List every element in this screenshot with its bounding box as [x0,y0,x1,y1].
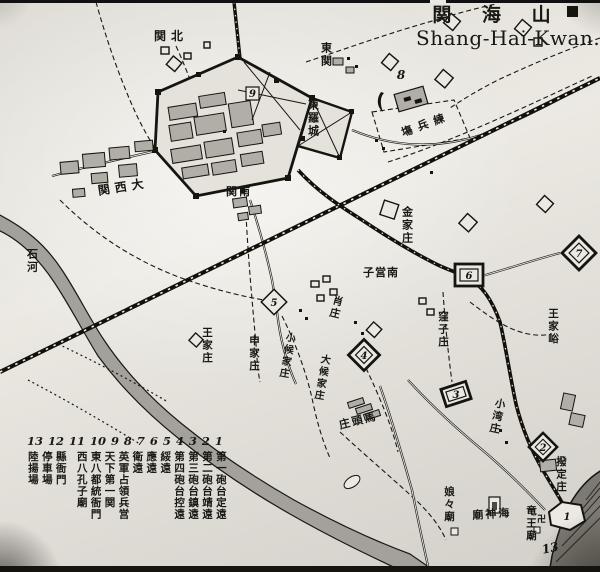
label-jinjia-village: 金家庄 [401,206,413,245]
legend-item: 縣衙門 [52,451,66,533]
map-legend: 13 12 11 10 9 8 7 6 5 4 3 2 1 陸揚場 停車場 縣衙… [24,434,226,533]
label-wangjia-village: 王家庄 [201,327,212,365]
legend-number: 1 [215,434,223,448]
legend-number: 3 [189,434,197,448]
legend-item: 停車場 [38,451,52,533]
legend-item: 英軍占領兵営 [115,451,129,533]
parade-ground-buildings [378,86,428,112]
label-stone-river: 石河 [26,248,38,274]
label-sea-god-temple: 廟神海 [472,507,512,521]
marker-8-number: 8 [397,68,406,82]
legend-number: 9 [111,434,119,448]
photo-top-border [0,0,600,3]
map-title-kanji: 関 海 山 [430,6,565,26]
label-boding-village: 撥定庄 [555,456,566,494]
label-south-suburb: 関南 [226,186,252,198]
legend-item: 第四砲台控遠 [170,451,184,533]
legend-item: 西八孔子廟 [73,451,87,533]
legend-number: 6 [150,434,158,448]
legend-item: 第二砲台靖遠 [198,451,212,533]
legend-number: 2 [202,434,210,448]
legend-number: 5 [163,434,171,448]
label-east-outer-city: 東羅城 [307,99,319,138]
battery-5-number: 5 [271,298,278,309]
town-marker-9-number: 9 [249,89,256,100]
legend-number: 7 [137,434,145,448]
map-title-roman: Shang-Hai-Kwan. [416,28,592,49]
battery-7-number: 7 [576,249,583,260]
battery-1-number: 1 [564,512,571,523]
battery-3-number: 3 [453,390,460,401]
legend-number: 8 [124,434,132,448]
hamlet-buildings [347,393,585,472]
label-north-suburb: 関北 [154,30,188,43]
label-nanyingzi: 子営南 [363,267,399,279]
legend-item-row: 陸揚場 停車場 縣衙門 西八孔子廟 東八都統衙門 天下第一関 英軍占領兵営 衛遠… [24,451,226,533]
label-niangniang-temple: 娘々廟 [443,486,454,524]
legend-number-row: 13 12 11 10 9 8 7 6 5 4 3 2 1 [24,434,226,448]
label-shenjia-village: 申家庄 [248,335,259,373]
map-page: 7 6 5 4 3 2 1 9 [0,0,600,572]
legend-number: 13 [27,434,43,448]
legend-item: 應遠 [142,451,156,533]
photo-top-border-gap [430,0,446,4]
battery-6-number: 6 [466,271,473,282]
label-wangjia-valley: 王家峪 [547,308,558,346]
legend-item: 第三砲台鎮遠 [184,451,198,533]
label-wazi-village: 窪子庄 [437,311,448,349]
legend-item: 陸揚場 [24,451,38,533]
legend-number: 10 [90,434,106,448]
photo-bottom-border [0,566,600,572]
legend-item: 東八都統衙門 [87,451,101,533]
legend-item: 綏遠 [156,451,170,533]
battery-4-number: 4 [361,351,368,362]
legend-number: 12 [48,434,64,448]
legend-number: 11 [69,434,85,448]
legend-item: 天下第一関 [101,451,115,533]
legend-item: 衛遠 [128,451,142,533]
legend-item: 第一砲台定遠 [212,451,226,533]
label-east-suburb: 東関 [320,42,332,68]
battery-2-number: 2 [539,443,547,454]
label-dragon-king-temple: 竜王廟 [525,505,536,543]
manji-icon: 卍 [537,516,546,525]
legend-number: 4 [176,434,184,448]
